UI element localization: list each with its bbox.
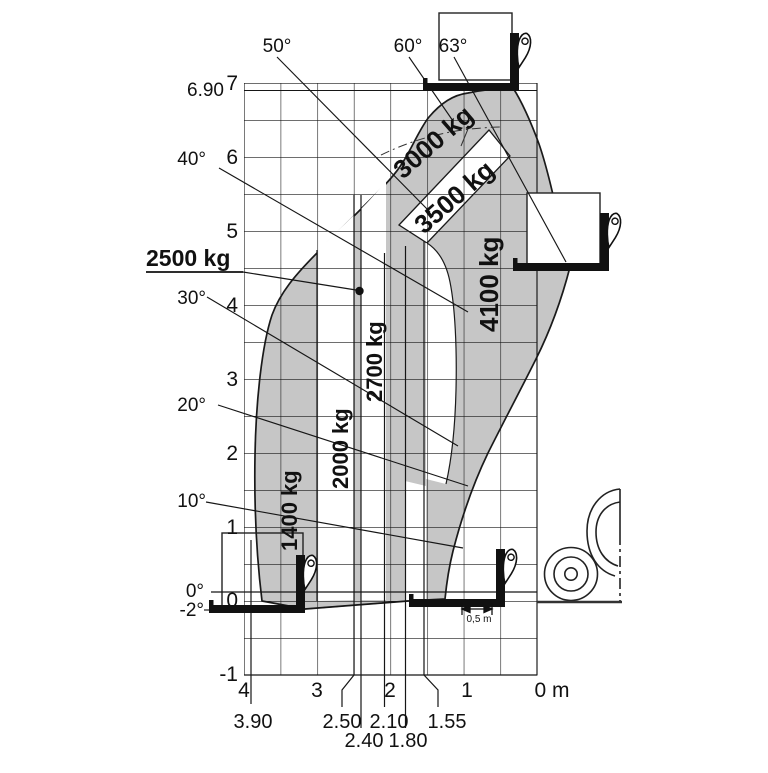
y-tick-2: 2: [226, 442, 238, 465]
angle-label-10: 10°: [177, 491, 206, 512]
load-chart-svg: 7 6 5 4 3 2 1 0 -1 6.90 50° 60° 63° 40° …: [0, 0, 768, 768]
y-tick-1: 1: [226, 516, 238, 539]
x-tick-2: 2: [384, 679, 396, 702]
load-label-4100: 4100 kg: [474, 237, 504, 332]
reach-label-240: 2.40: [345, 730, 384, 752]
angle-label-0: 0°: [186, 581, 204, 602]
callout-2500-dot: [355, 287, 363, 295]
load-label-2500: 2500 kg: [146, 245, 230, 271]
y-tick-4: 4: [226, 294, 238, 317]
angle-label-20: 20°: [177, 395, 206, 416]
angle-label-63: 63°: [439, 36, 468, 57]
reach-label-180: 1.80: [389, 730, 428, 752]
load-label-2700: 2700 kg: [362, 321, 387, 402]
y-tick-m1: -1: [219, 663, 238, 686]
min-reach-label: 0,5 m: [466, 614, 491, 625]
y-tick-5: 5: [226, 220, 238, 243]
angle-label-m2: -2°: [180, 600, 205, 621]
x-tick-4: 4: [238, 679, 250, 702]
load-label-1400: 1400 kg: [277, 470, 302, 551]
y-tick-7: 7: [226, 72, 238, 95]
y-tick-3: 3: [226, 368, 238, 391]
angle-label-40: 40°: [177, 149, 206, 170]
x-tick-1: 1: [461, 679, 473, 702]
reach-label-155: 1.55: [428, 711, 467, 733]
angle-label-50: 50°: [263, 36, 292, 57]
wheel-hub: [565, 568, 577, 580]
y-tick-0: 0: [226, 589, 238, 612]
y-tick-6: 6: [226, 146, 238, 169]
y-max-height-label: 6.90: [187, 80, 224, 101]
reach-label-390: 3.90: [234, 711, 273, 733]
x-tick-3: 3: [311, 679, 323, 702]
load-chart-page: 7 6 5 4 3 2 1 0 -1 6.90 50° 60° 63° 40° …: [0, 0, 768, 768]
x-tick-0m: 0 m: [534, 679, 569, 702]
angle-label-30: 30°: [177, 288, 206, 309]
angle-label-60: 60°: [394, 36, 423, 57]
load-label-2000: 2000 kg: [328, 408, 353, 489]
